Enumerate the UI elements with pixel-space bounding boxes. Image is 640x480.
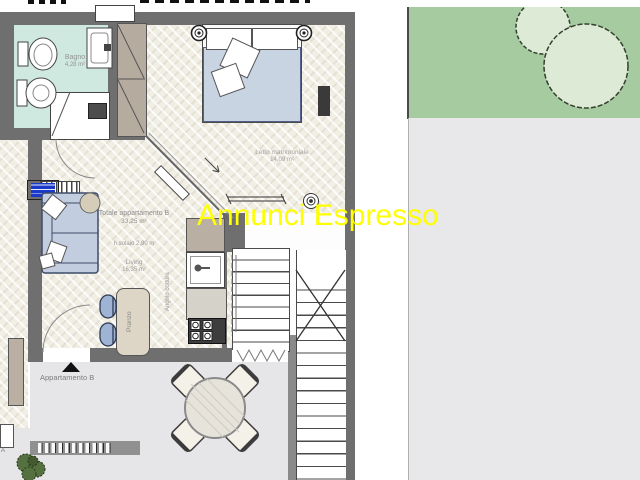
- dining-chairs-icon: [100, 295, 116, 346]
- label-angolo-cottura: Angolo cottura: [165, 262, 173, 322]
- stairs-cross-lines: [296, 270, 345, 341]
- label-totale-name: Totale appartamento B: [92, 209, 176, 218]
- watermark-text: Annunci Espresso: [197, 199, 439, 233]
- tree-canopies-icon: [516, 0, 628, 108]
- label-bagno-name: Bagno: [50, 53, 100, 62]
- bathroom-door-arc: [56, 139, 95, 178]
- label-solaio: h solaio 2,80 m: [97, 241, 171, 249]
- label-bagno: Bagno 4,28 m²: [50, 53, 100, 70]
- label-living-name: Living: [111, 259, 157, 267]
- kitchen-slider-track: [232, 255, 236, 332]
- wardrobe-door-lines: [117, 25, 145, 133]
- terrace-table-set-icon: [170, 363, 261, 454]
- nightstand-left-icon: [192, 26, 207, 41]
- bed-cushions-icon: [211, 38, 260, 97]
- kitchen-faucet-icon: [195, 265, 210, 271]
- floor-plan-image: Bagno 4,28 m² Letto matrimoniale 14,09 m…: [0, 0, 640, 480]
- label-appartamento-b: Appartamento B: [40, 373, 116, 383]
- label-letto-name: Letto matrimoniale: [243, 149, 321, 157]
- label-solaio-text: h solaio 2,80 m: [97, 241, 171, 249]
- label-totale-area: 33,25 m²: [92, 218, 176, 226]
- entrance-arrow-icon: [62, 362, 80, 372]
- label-bagno-area: 4,28 m²: [50, 62, 100, 70]
- bidet-icon: [17, 78, 56, 108]
- entrance-door-arc: [43, 305, 90, 352]
- label-pranzo: Pranzo: [126, 300, 134, 344]
- plant-icon: [17, 454, 45, 480]
- plan-vector-overlay: [0, 0, 640, 480]
- label-letto: Letto matrimoniale 14,09 m²: [243, 149, 321, 165]
- label-appartamento-a-fragment: A: [1, 448, 11, 456]
- label-living: Living 16,35 m²: [111, 259, 157, 275]
- cooktop-burners-icon: [191, 321, 212, 341]
- label-totale: Totale appartamento B 33,25 m²: [92, 209, 176, 227]
- label-living-area: 16,35 m²: [111, 267, 157, 275]
- nightstand-right-icon: [297, 26, 312, 41]
- stairs-break-zigzag: [237, 350, 285, 361]
- label-letto-area: 14,09 m²: [243, 157, 321, 165]
